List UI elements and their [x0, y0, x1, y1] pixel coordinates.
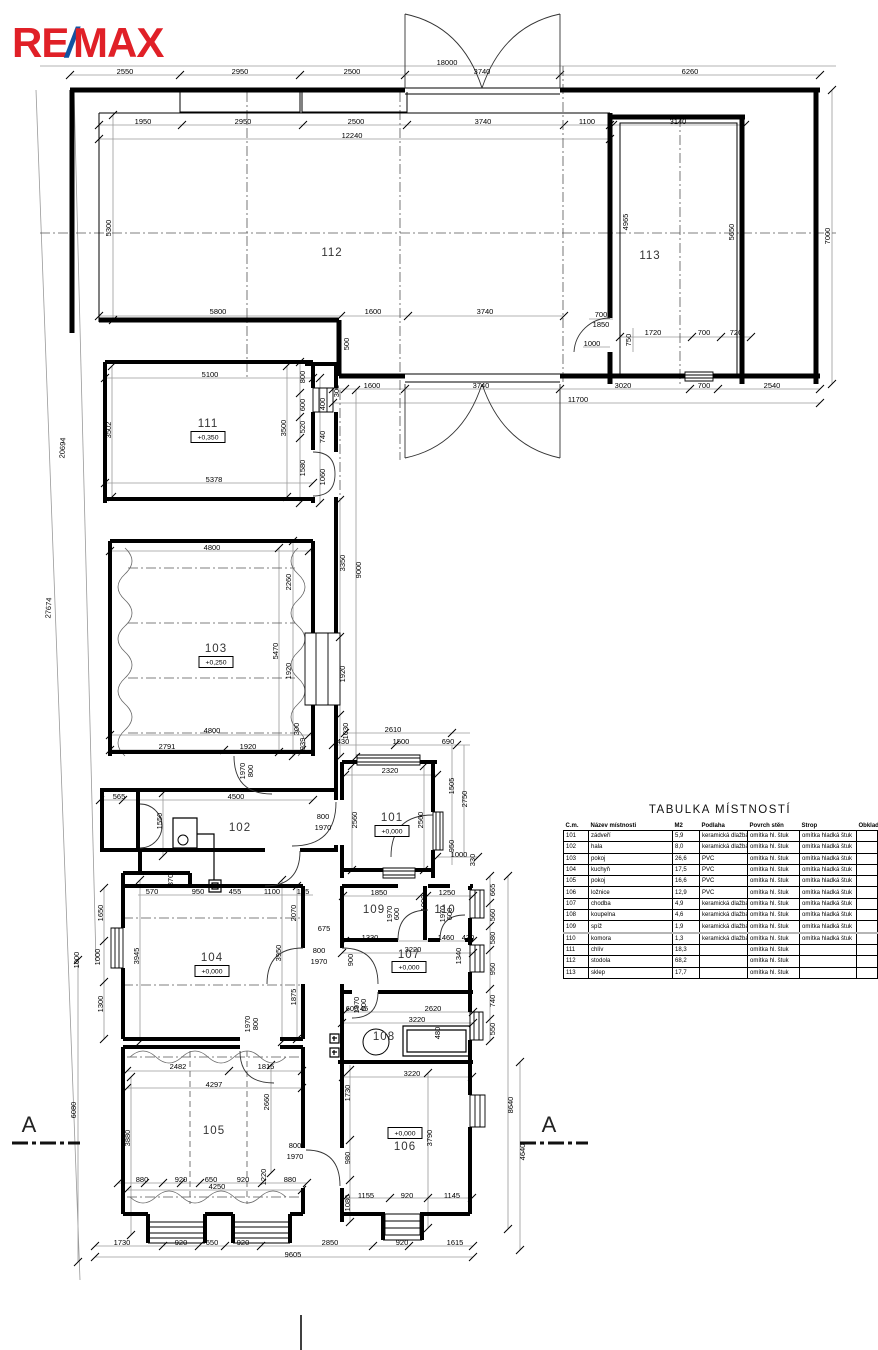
- dimension-label: 6260: [682, 67, 699, 76]
- room-number-label: 108: [373, 1031, 395, 1043]
- dimension-label: 2950: [232, 67, 249, 76]
- table-cell: kuchyň: [589, 864, 673, 875]
- dimension-label: 2620: [425, 1004, 442, 1013]
- table-cell: 1,9: [673, 921, 700, 933]
- dimension-label: 550: [488, 1023, 497, 1036]
- dimension-labels: 2550295025003740626018000195029502500374…: [43, 58, 832, 1259]
- dimension-label: 2070: [289, 905, 298, 922]
- dimension-label: 1730: [114, 1238, 131, 1247]
- table-cell: komora: [589, 933, 673, 945]
- dimension-label: 4297: [206, 1080, 223, 1089]
- table-cell: sklep: [589, 967, 673, 978]
- dimension-label: 1600: [365, 307, 382, 316]
- table-row: 105pokoj16,6PVComítka hl. štukomítka hla…: [564, 876, 878, 887]
- table-cell: 5,9: [673, 831, 700, 842]
- dimension-label: 3502: [104, 422, 113, 439]
- table-row: 109spíž1,9keramická dlažbaomítka hl. štu…: [564, 921, 878, 933]
- dimension-label: 1920: [284, 663, 293, 680]
- dimension-label: 1550: [155, 813, 164, 830]
- table-cell: omítka hl. štuk: [748, 898, 800, 909]
- table-row: 104kuchyň17,5PVComítka hl. štukomítka hl…: [564, 864, 878, 875]
- dimension-label: 3945: [132, 948, 141, 965]
- level-label: +0,000: [382, 828, 403, 835]
- dimension-label: 5470: [271, 643, 280, 660]
- table-cell: 107: [564, 898, 589, 909]
- table-cell: [857, 921, 878, 933]
- table-cell: keramická dlažba: [700, 921, 748, 933]
- dimension-label: 1060: [318, 469, 327, 486]
- dimension-label: 1850: [593, 320, 610, 329]
- dimension-label: 700: [698, 381, 711, 390]
- dimension-label: 920: [237, 1175, 250, 1184]
- table-cell: omítka hladká štuk: [800, 831, 857, 842]
- table-row: 106ložnice12,9PVComítka hl. štukomítka h…: [564, 887, 878, 898]
- dimension-label: 1000: [419, 895, 428, 912]
- table-cell: 109: [564, 921, 589, 933]
- table-cell: [857, 887, 878, 898]
- dimension-ticks: [66, 71, 836, 1266]
- dimension-label: 2560: [350, 812, 359, 829]
- table-cell: PVC: [700, 864, 748, 875]
- table-cell: [800, 967, 857, 978]
- dimension-label: 18000: [437, 58, 458, 67]
- dimension-label: 2560: [416, 812, 425, 829]
- table-cell: 8,0: [673, 842, 700, 853]
- dimension-label: 1970: [311, 957, 328, 966]
- table-cell: omítka hl. štuk: [748, 956, 800, 967]
- table-row: 113sklep17,7omítka hl. štuk: [564, 967, 878, 978]
- dimension-label: 330: [468, 854, 477, 867]
- table-cell: omítka hladká štuk: [800, 842, 857, 853]
- dimension-label: 11700: [568, 395, 588, 404]
- table-cell: 106: [564, 887, 589, 898]
- dimension-label: 950: [192, 887, 205, 896]
- level-label: +0,000: [202, 968, 223, 975]
- dimension-label: 900: [346, 954, 355, 967]
- table-cell: chlív: [589, 944, 673, 955]
- dimension-label: 700: [698, 328, 711, 337]
- table-cell: omítka hladká štuk: [800, 887, 857, 898]
- table-cell: 113: [564, 967, 589, 978]
- table-cell: 104: [564, 864, 589, 875]
- dimension-label: 430: [337, 737, 350, 746]
- table-cell: 16,6: [673, 876, 700, 887]
- dimension-label: 3020: [615, 381, 632, 390]
- dimension-label: 600: [298, 399, 307, 412]
- dimension-label: 800: [289, 1141, 302, 1150]
- table-cell: 111: [564, 944, 589, 955]
- dimension-label: 3880: [123, 1130, 132, 1147]
- dimension-label: 800: [317, 812, 330, 821]
- dimension-label: 1970: [315, 823, 332, 832]
- room-number-label: 106: [394, 1141, 416, 1153]
- table-cell: 4,6: [673, 910, 700, 921]
- dimension-label: 1000: [584, 339, 601, 348]
- table-cell: [800, 944, 857, 955]
- table-cell: chodba: [589, 898, 673, 909]
- dimension-label: 920: [175, 1175, 188, 1184]
- table-cell: PVC: [700, 876, 748, 887]
- dimension-label: 740: [488, 995, 497, 1008]
- room-number-label: 109: [363, 904, 385, 916]
- dimension-label: 1970: [287, 1152, 304, 1161]
- dimension-label: 2482: [170, 1062, 187, 1071]
- table-cell: omítka hladká štuk: [800, 853, 857, 864]
- dimension-label: 1250: [439, 888, 456, 897]
- table-cell: spíž: [589, 921, 673, 933]
- dimension-label: 3740: [477, 307, 494, 316]
- dimension-label: 740: [318, 431, 327, 444]
- table-cell: [857, 831, 878, 842]
- dimension-label: 800: [298, 371, 307, 384]
- table-cell: [700, 956, 748, 967]
- table-cell: 110: [564, 933, 589, 945]
- table-cell: 105: [564, 876, 589, 887]
- dimension-label: 3220: [409, 1015, 426, 1024]
- dimension-label: 3220: [404, 1069, 421, 1078]
- dimension-label: 12240: [342, 131, 363, 140]
- dimension-label: 2500: [344, 67, 361, 76]
- table-cell: omítka hl. štuk: [748, 933, 800, 945]
- dimension-label: 2260: [284, 574, 293, 591]
- dimension-label: 880: [284, 1175, 297, 1184]
- dimension-label: 1145: [444, 1191, 460, 1200]
- dimension-label: 2750: [460, 791, 469, 808]
- room-number-label: 107: [398, 949, 420, 961]
- door-symbols: [140, 14, 610, 1186]
- table-cell: omítka hl. štuk: [748, 864, 800, 875]
- dimension-label: 455: [229, 887, 242, 896]
- dimension-label: 5300: [104, 220, 113, 237]
- dimension-label: 880: [136, 1175, 149, 1184]
- table-row: 103pokoj26,6PVComítka hl. štukomítka hla…: [564, 853, 878, 864]
- dimension-label: 1650: [96, 905, 105, 922]
- table-cell: keramická dlažba: [700, 933, 748, 945]
- dimension-label: 650: [205, 1175, 218, 1184]
- dimension-label: 20694: [57, 437, 67, 458]
- table-row: 110komora1,3keramická dlažbaomítka hl. š…: [564, 933, 878, 945]
- dimension-label: 800: [251, 1018, 260, 1031]
- dimension-label: 2660: [262, 1094, 271, 1111]
- dimension-label: 520: [298, 421, 307, 434]
- room-number-label: 101: [381, 812, 403, 824]
- dimension-label: 3740: [473, 381, 490, 390]
- table-cell: hala: [589, 842, 673, 853]
- table-cell: omítka hl. štuk: [748, 853, 800, 864]
- dimension-label: 2500: [348, 117, 365, 126]
- dimension-label: 665: [488, 884, 497, 897]
- dimension-label: 5378: [206, 475, 223, 484]
- room-table-header: Č.m.Název místnostiM2PodlahaPovrch stěnS…: [564, 822, 878, 831]
- dimension-label: 1460: [438, 933, 455, 942]
- table-cell: [857, 944, 878, 955]
- table-cell: omítka hladká štuk: [800, 898, 857, 909]
- table-cell: stodola: [589, 956, 673, 967]
- table-cell: keramická dlažba: [700, 831, 748, 842]
- table-cell: omítka hladká štuk: [800, 910, 857, 921]
- dimension-label: 5650: [727, 224, 736, 241]
- table-cell: 68,2: [673, 956, 700, 967]
- table-cell: 18,3: [673, 944, 700, 955]
- table-cell: [857, 967, 878, 978]
- section-marker-left: A: [22, 1112, 37, 1137]
- dimension-label: 1730: [343, 1085, 352, 1102]
- dimension-label: 920: [401, 1191, 414, 1200]
- table-row: 107chodba4,9keramická dlažbaomítka hl. š…: [564, 898, 878, 909]
- dimension-label: 1850: [371, 888, 388, 897]
- dimension-label: 1220: [259, 1169, 268, 1186]
- dimension-label: 1155: [358, 1191, 374, 1200]
- table-row: 101zádveří5,9keramická dlažbaomítka hl. …: [564, 831, 878, 842]
- dimension-label: 3500: [279, 420, 288, 437]
- dimension-label: 800: [313, 946, 326, 955]
- dimension-label: 980: [343, 1152, 352, 1165]
- table-cell: [857, 842, 878, 853]
- table-cell: 102: [564, 842, 589, 853]
- dimension-label: 9605: [285, 1250, 302, 1259]
- table-row: 102hala8,0keramická dlažbaomítka hl. štu…: [564, 842, 878, 853]
- dimension-label: 9000: [354, 562, 363, 579]
- table-cell: [857, 864, 878, 875]
- dimension-label: 565: [113, 792, 126, 801]
- table-cell: [857, 956, 878, 967]
- table-cell: 103: [564, 853, 589, 864]
- dimension-label: 4965: [621, 214, 630, 231]
- dimension-label: 2540: [764, 381, 781, 390]
- level-label: +0,000: [395, 1130, 416, 1137]
- dimension-label: 3790: [425, 1130, 434, 1147]
- dimension-label: 2550: [117, 67, 134, 76]
- table-cell: [857, 876, 878, 887]
- dimension-label: 5100: [202, 370, 219, 379]
- room-table: Č.m.Název místnostiM2PodlahaPovrch stěnS…: [563, 822, 878, 979]
- section-marker-right: A: [542, 1112, 557, 1137]
- table-header-cell: Povrch stěn: [748, 822, 800, 831]
- table-cell: koupelna: [589, 910, 673, 921]
- dimension-label: 300: [292, 723, 301, 736]
- dimension-label: 650: [206, 1238, 219, 1247]
- table-cell: 26,6: [673, 853, 700, 864]
- dimension-label: 4800: [204, 726, 221, 735]
- dimension-label: 570: [146, 887, 159, 896]
- dimension-label: 750: [624, 334, 633, 347]
- table-cell: omítka hladká štuk: [800, 933, 857, 945]
- table-cell: 4,9: [673, 898, 700, 909]
- floorplan-page: RE/MAX A A 255029502500: [0, 0, 878, 1350]
- dimension-label: 3740: [475, 117, 492, 126]
- dimension-label: 675: [318, 924, 331, 933]
- dimension-label: 400: [318, 398, 327, 411]
- dimension-label: 3740: [474, 67, 491, 76]
- dimension-label: 2610: [385, 725, 402, 734]
- dimension-label: 1920: [240, 742, 257, 751]
- room-number-label: 105: [203, 1125, 225, 1137]
- dimension-label: 27674: [43, 597, 53, 618]
- dimension-label: 1600: [364, 381, 381, 390]
- dimension-label: 1100: [579, 117, 595, 126]
- dimension-label: 5800: [210, 307, 227, 316]
- dimension-label: 1580: [298, 460, 307, 477]
- dimension-label: 480: [433, 1027, 442, 1040]
- dimension-label: 950: [488, 963, 497, 976]
- table-row: 111chlív18,3omítka hl. štuk: [564, 944, 878, 955]
- dimension-label: 3950: [274, 945, 283, 962]
- table-cell: [700, 967, 748, 978]
- dimension-label: 4640: [518, 1144, 527, 1161]
- dimension-label: 6080: [69, 1102, 78, 1119]
- table-cell: omítka hl. štuk: [748, 921, 800, 933]
- table-cell: 17,7: [673, 967, 700, 978]
- table-cell: omítka hl. štuk: [748, 887, 800, 898]
- dimension-label: 1815: [258, 1062, 275, 1071]
- dimension-label: 1950: [135, 117, 152, 126]
- dimension-label: 700: [595, 310, 608, 319]
- room-number-label: 102: [229, 822, 251, 834]
- dimension-label: 8640: [506, 1097, 515, 1114]
- table-cell: omítka hl. štuk: [748, 831, 800, 842]
- room-table-body: 101zádveří5,9keramická dlažbaomítka hl. …: [564, 831, 878, 979]
- dimension-label: 920: [175, 1238, 188, 1247]
- table-cell: PVC: [700, 853, 748, 864]
- dimension-label: 1920: [338, 666, 347, 683]
- dimension-label: 690: [442, 737, 455, 746]
- table-cell: omítka hladká štuk: [800, 864, 857, 875]
- dimension-label: 1340: [454, 948, 463, 965]
- dimension-label: 1080: [343, 1195, 352, 1212]
- table-cell: [700, 944, 748, 955]
- dimension-label: 500: [342, 338, 351, 351]
- room-number-label: 112: [321, 247, 342, 259]
- dimension-label: 2850: [322, 1238, 339, 1247]
- dimension-label: 1875: [289, 989, 298, 1006]
- dimension-label: 600: [392, 908, 401, 921]
- table-cell: ložnice: [589, 887, 673, 898]
- dimension-label: 600: [359, 999, 368, 1012]
- table-header-cell: Obklad: [857, 822, 878, 831]
- dimension-lines: [36, 66, 836, 1280]
- dimension-label: 300: [332, 385, 341, 398]
- dimension-label: 800: [246, 765, 255, 778]
- table-cell: omítka hl. štuk: [748, 967, 800, 978]
- walls-outer: [70, 90, 820, 384]
- room-table-title: TABULKA MÍSTNOSTÍ: [563, 804, 877, 816]
- table-cell: omítka hl. štuk: [748, 876, 800, 887]
- table-header-cell: Strop: [800, 822, 857, 831]
- table-cell: pokoj: [589, 853, 673, 864]
- table-cell: 112: [564, 956, 589, 967]
- room-labels: 112113111+0,350103+0,250102101+0,000104+…: [191, 247, 661, 1153]
- table-cell: omítka hladká štuk: [800, 876, 857, 887]
- table-cell: pokoj: [589, 876, 673, 887]
- dimension-label: 370: [166, 874, 175, 887]
- dimension-label: 1000: [451, 850, 468, 859]
- room-number-label: 110: [434, 904, 455, 916]
- dimension-label: 1720: [645, 328, 662, 337]
- dimension-label: 430: [462, 933, 475, 942]
- dimension-label: 939: [298, 738, 307, 751]
- dimension-label: 1330: [362, 933, 379, 942]
- table-cell: [800, 956, 857, 967]
- dimension-label: 1000: [72, 952, 81, 969]
- table-header-cell: Název místnosti: [589, 822, 673, 831]
- table-cell: 108: [564, 910, 589, 921]
- dimension-label: 920: [396, 1238, 409, 1247]
- level-label: +0,000: [399, 964, 420, 971]
- table-cell: omítka hl. štuk: [748, 910, 800, 921]
- dimension-label: 560: [488, 909, 497, 922]
- table-row: 112stodola68,2omítka hl. štuk: [564, 956, 878, 967]
- table-cell: [857, 933, 878, 945]
- dimension-label: 1615: [447, 1238, 464, 1247]
- dimension-label: 720: [730, 328, 743, 337]
- stove-burner-icon: [178, 835, 188, 845]
- dimension-label: 2320: [382, 766, 399, 775]
- table-cell: zádveří: [589, 831, 673, 842]
- room-table-panel: TABULKA MÍSTNOSTÍ Č.m.Název místnostiM2P…: [563, 804, 877, 979]
- table-cell: 17,5: [673, 864, 700, 875]
- table-header-cell: M2: [673, 822, 700, 831]
- table-cell: 101: [564, 831, 589, 842]
- table-header-cell: Podlaha: [700, 822, 748, 831]
- dimension-label: 1505: [447, 778, 456, 795]
- table-cell: omítka hladká štuk: [800, 921, 857, 933]
- walls-house: [100, 362, 473, 1243]
- table-cell: 1,3: [673, 933, 700, 945]
- dimension-label: 1300: [96, 996, 105, 1013]
- dimension-label: 1000: [93, 949, 102, 966]
- floor-plan-drawing: A A 255029502500374062601800019502950250…: [0, 0, 878, 1350]
- table-cell: keramická dlažba: [700, 898, 748, 909]
- dimension-label: 3350: [338, 555, 347, 572]
- level-label: +0,350: [198, 434, 219, 441]
- dimension-label: 4800: [204, 543, 221, 552]
- dimension-label: 2791: [159, 742, 176, 751]
- dimension-label: 1500: [393, 737, 410, 746]
- table-cell: [857, 898, 878, 909]
- dimension-label: 7000: [823, 228, 832, 245]
- dimension-label: 1100: [264, 887, 280, 896]
- room-number-label: 113: [639, 250, 660, 262]
- room-number-label: 111: [198, 418, 218, 430]
- table-cell: [857, 853, 878, 864]
- table-cell: [857, 910, 878, 921]
- table-cell: omítka hl. štuk: [748, 842, 800, 853]
- table-cell: omítka hl. štuk: [748, 944, 800, 955]
- table-header-cell: Č.m.: [564, 822, 589, 831]
- dimension-label: 4500: [228, 792, 245, 801]
- table-cell: 12,9: [673, 887, 700, 898]
- dimension-label: 920: [237, 1238, 250, 1247]
- table-cell: PVC: [700, 887, 748, 898]
- room-number-label: 104: [201, 952, 223, 964]
- table-cell: keramická dlažba: [700, 910, 748, 921]
- dimension-label: 580: [488, 932, 497, 945]
- dimension-label: 185: [297, 887, 310, 896]
- level-label: +0,250: [206, 659, 227, 666]
- dimension-label: 3140: [670, 117, 687, 126]
- table-row: 108koupelna4,6keramická dlažbaomítka hl.…: [564, 910, 878, 921]
- room-number-label: 103: [205, 643, 227, 655]
- table-cell: keramická dlažba: [700, 842, 748, 853]
- dimension-label: 2950: [235, 117, 252, 126]
